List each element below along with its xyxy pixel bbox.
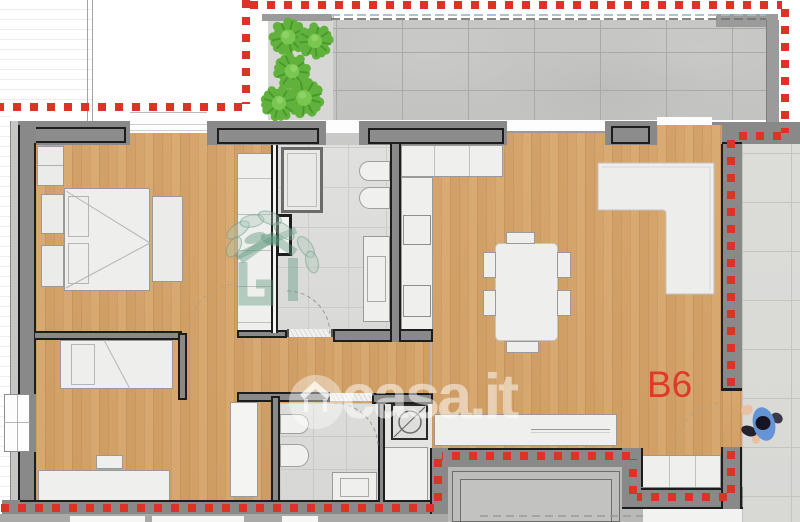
svg-text:casa.it: casa.it <box>341 362 519 432</box>
svg-text:B6: B6 <box>647 364 692 405</box>
